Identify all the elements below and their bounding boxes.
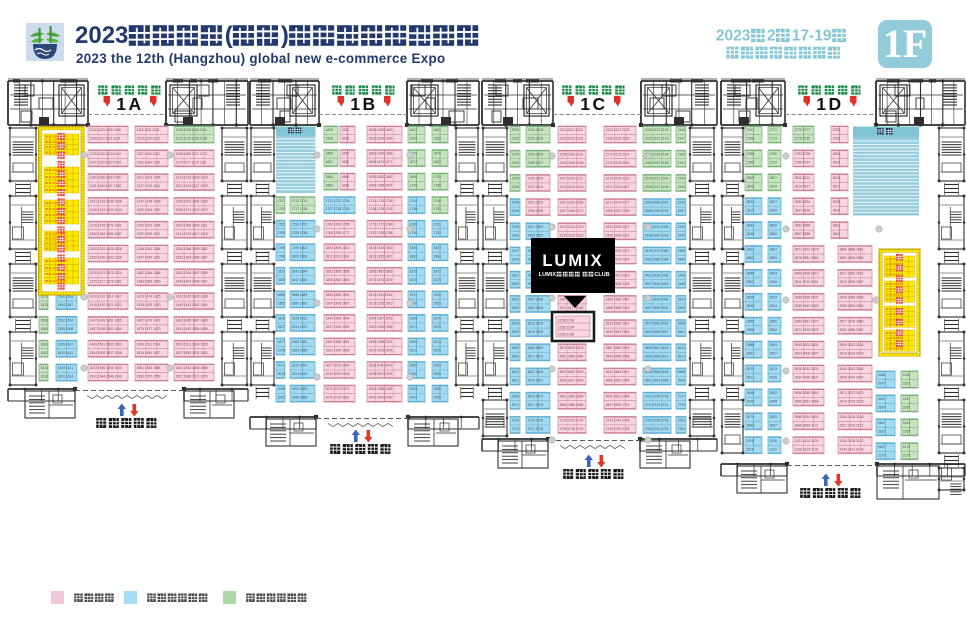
svg-text:1756 1757: 1756 1757 xyxy=(292,222,308,226)
svg-text:2033 2034 2035: 2033 2034 2035 xyxy=(326,372,350,376)
svg-text:3121 3124 3125: 3121 3124 3125 xyxy=(795,439,819,443)
svg-text:1975: 1975 xyxy=(434,325,442,329)
svg-text:3147: 3147 xyxy=(878,382,886,386)
svg-text:1689: 1689 xyxy=(342,184,350,188)
svg-text:1866 1867 1869: 1866 1867 1869 xyxy=(369,269,393,273)
svg-text:1139 1142 1143 1144: 1139 1142 1143 1144 xyxy=(90,152,121,156)
svg-text:2196: 2196 xyxy=(512,185,520,189)
svg-text:2102 2103: 2102 2103 xyxy=(528,128,544,132)
svg-text:1616: 1616 xyxy=(41,375,49,379)
svg-text:2806: 2806 xyxy=(747,184,755,188)
svg-text:2724 2726: 2724 2726 xyxy=(528,419,544,423)
svg-text:2116 2119 2122: 2116 2119 2122 xyxy=(560,137,584,141)
svg-text:1703: 1703 xyxy=(434,175,442,179)
svg-text:1980 1981: 1980 1981 xyxy=(292,340,308,344)
svg-text:1877: 1877 xyxy=(434,269,442,273)
svg-text:3074 3075 3078: 3074 3075 3078 xyxy=(840,400,864,404)
svg-text:2625 2627: 2625 2627 xyxy=(528,379,544,383)
svg-text:2194: 2194 xyxy=(512,177,520,181)
svg-text:1109 1110 1113 1114: 1109 1110 1113 1114 xyxy=(90,137,121,141)
svg-text:3045 3046 3047: 3045 3046 3047 xyxy=(840,376,864,380)
svg-text:3118: 3118 xyxy=(770,439,777,443)
svg-text:2929: 2929 xyxy=(747,295,755,299)
svg-text:2790: 2790 xyxy=(770,152,778,156)
svg-text:2084 2086 2089: 2084 2086 2089 xyxy=(369,387,393,391)
svg-text:1755: 1755 xyxy=(278,231,286,235)
svg-text:1602: 1602 xyxy=(41,351,49,355)
svg-text:2451: 2451 xyxy=(512,298,520,302)
svg-text:2785: 2785 xyxy=(833,137,841,141)
svg-text:3126 3129 3131: 3126 3129 3131 xyxy=(795,447,819,451)
svg-text:3016 3018 3019: 3016 3018 3019 xyxy=(840,352,864,356)
svg-text:2213 2215 2216: 2213 2215 2216 xyxy=(560,185,584,189)
svg-text:3082: 3082 xyxy=(747,423,755,427)
svg-text:2767: 2767 xyxy=(747,128,755,132)
svg-text:1679: 1679 xyxy=(434,152,442,156)
svg-text:1668 1670 1671: 1668 1670 1671 xyxy=(369,160,393,164)
svg-text:1847 1850: 1847 1850 xyxy=(292,278,308,282)
svg-text:1201 1203 1204: 1201 1203 1204 xyxy=(137,176,161,180)
svg-text:2130 2132 2133: 2130 2132 2133 xyxy=(606,137,630,141)
svg-text:1240 1242 1243 1244: 1240 1242 1243 1244 xyxy=(90,208,122,212)
svg-text:2982 2985 2987: 2982 2985 2987 xyxy=(840,328,864,332)
svg-text:2199 2200: 2199 2200 xyxy=(528,177,544,181)
svg-text:2146: 2146 xyxy=(678,128,686,132)
svg-text:1717 1718: 1717 1718 xyxy=(292,207,308,211)
svg-text:1116 1119 1120: 1116 1119 1120 xyxy=(137,128,160,132)
svg-text:2991: 2991 xyxy=(747,352,755,356)
svg-text:2811 2814: 2811 2814 xyxy=(795,176,811,180)
svg-text:2782: 2782 xyxy=(833,128,841,132)
svg-text:1132 1133 1136 1138: 1132 1133 1136 1138 xyxy=(176,137,207,141)
svg-text:2581 2583 2584: 2581 2583 2584 xyxy=(560,354,584,358)
svg-text:1688: 1688 xyxy=(342,175,350,179)
svg-text:1841 1844: 1841 1844 xyxy=(292,269,308,273)
svg-text:2391: 2391 xyxy=(512,273,520,277)
svg-text:3107 3109 3112: 3107 3109 3112 xyxy=(840,423,864,427)
svg-text:1694 1695 1697: 1694 1695 1697 xyxy=(369,184,393,188)
svg-text:1647: 1647 xyxy=(410,128,418,132)
svg-text:2571 2573: 2571 2573 xyxy=(528,354,544,358)
svg-text:2512 2515: 2512 2515 xyxy=(528,322,544,326)
svg-text:1698: 1698 xyxy=(410,175,418,179)
svg-text:2587 2590 2593: 2587 2590 2593 xyxy=(606,346,630,350)
svg-text:1652: 1652 xyxy=(434,137,442,141)
svg-text:2606 2609 2612: 2606 2609 2612 xyxy=(645,354,669,358)
svg-text:2297: 2297 xyxy=(678,209,686,213)
svg-text:2389: 2389 xyxy=(678,258,686,262)
svg-text:2483 2486 2487: 2483 2486 2487 xyxy=(606,298,630,302)
svg-text:2301 2302: 2301 2302 xyxy=(528,225,544,229)
svg-text:2837 2838: 2837 2838 xyxy=(795,208,811,212)
svg-text:1681: 1681 xyxy=(434,160,442,164)
svg-text:3170: 3170 xyxy=(878,453,886,457)
svg-text:2977 2978 2980: 2977 2978 2980 xyxy=(840,319,864,323)
svg-text:2288 2289 2292: 2288 2289 2292 xyxy=(645,209,669,213)
svg-text:2454: 2454 xyxy=(512,306,520,310)
svg-text:1542 1544 1546 1549: 1542 1544 1546 1549 xyxy=(90,375,122,379)
svg-text:1491 1493 1494 1496: 1491 1493 1494 1496 xyxy=(176,327,208,331)
svg-text:2018: 2018 xyxy=(278,372,286,376)
svg-text:2243: 2243 xyxy=(678,185,686,189)
svg-text:2020 2021: 2020 2021 xyxy=(292,364,308,368)
svg-text:2892 2894 2896: 2892 2894 2896 xyxy=(840,256,864,260)
svg-text:2861: 2861 xyxy=(833,224,841,228)
svg-text:1282 1284 1286 1287: 1282 1284 1286 1287 xyxy=(90,232,122,236)
svg-text:1183 1186 1189 1190: 1183 1186 1189 1190 xyxy=(90,176,121,180)
svg-text:2729 2731 2734: 2729 2731 2734 xyxy=(560,419,584,423)
svg-text:1221 1224 1227 1229: 1221 1224 1227 1229 xyxy=(176,184,208,188)
svg-text:2533 2536 2537: 2533 2536 2537 xyxy=(606,322,630,326)
svg-text:2809: 2809 xyxy=(770,184,778,188)
svg-text:2617: 2617 xyxy=(678,354,686,358)
svg-text:1758 1759: 1758 1759 xyxy=(292,231,308,235)
svg-text:1C58 1C60: 1C58 1C60 xyxy=(558,319,574,323)
svg-text:2690 2691 2694: 2690 2691 2694 xyxy=(606,394,630,398)
svg-text:1791: 1791 xyxy=(434,222,442,226)
svg-text:2015: 2015 xyxy=(434,349,442,353)
svg-text:2150: 2150 xyxy=(512,161,520,165)
svg-text:1102 1103 1105 1108: 1102 1103 1105 1108 xyxy=(90,128,121,132)
svg-text:2246: 2246 xyxy=(512,201,520,205)
svg-text:1721 1722 1724: 1721 1722 1724 xyxy=(326,199,350,203)
svg-text:1123 1124 1125: 1123 1124 1125 xyxy=(137,137,160,141)
svg-text:2722: 2722 xyxy=(512,427,520,431)
svg-text:1457 1458 1461 1464: 1457 1458 1461 1464 xyxy=(90,327,122,331)
svg-text:2958: 2958 xyxy=(747,328,755,332)
svg-text:1C62 1C64: 1C62 1C64 xyxy=(558,326,574,330)
svg-text:2345: 2345 xyxy=(678,225,686,229)
svg-text:1214 1215 1218 1219: 1214 1215 1218 1219 xyxy=(176,176,208,180)
svg-text:1362 1364 1366 1367: 1362 1364 1366 1367 xyxy=(176,256,208,260)
svg-text:2862: 2862 xyxy=(833,232,841,236)
svg-text:1834: 1834 xyxy=(434,254,442,258)
svg-text:1589: 1589 xyxy=(41,327,49,331)
svg-text:2773: 2773 xyxy=(770,137,778,141)
svg-text:2240: 2240 xyxy=(678,177,686,181)
svg-text:2727 2728: 2727 2728 xyxy=(528,427,544,431)
svg-text:1329 1330 1333 1336: 1329 1330 1333 1336 xyxy=(90,256,122,260)
svg-text:3087: 3087 xyxy=(770,423,778,427)
svg-text:3140 3141 3143: 3140 3141 3143 xyxy=(840,447,864,451)
svg-text:1567 1568 1571 1573: 1567 1568 1571 1573 xyxy=(176,375,208,379)
svg-text:1561 1563 1565 1566: 1561 1563 1565 1566 xyxy=(176,366,208,370)
svg-text:3160: 3160 xyxy=(903,406,911,410)
svg-text:2796 2797: 2796 2797 xyxy=(795,161,811,165)
svg-text:3115: 3115 xyxy=(747,439,754,443)
svg-text:2753 2755 2756: 2753 2755 2756 xyxy=(645,419,669,423)
svg-text:2620: 2620 xyxy=(512,370,520,374)
svg-text:2863: 2863 xyxy=(747,248,755,252)
svg-text:2827: 2827 xyxy=(770,200,778,204)
svg-text:2599 2601 2603: 2599 2601 2603 xyxy=(645,346,669,350)
svg-text:1859 1860 1863: 1859 1860 1863 xyxy=(326,278,350,282)
svg-text:1168 1169 1171 1173: 1168 1169 1171 1173 xyxy=(176,152,207,156)
svg-text:2038 2040 2043: 2038 2040 2043 xyxy=(369,364,393,368)
svg-text:1588: 1588 xyxy=(41,319,49,323)
svg-text:2800: 2800 xyxy=(833,152,841,156)
svg-text:3120: 3120 xyxy=(770,447,778,451)
svg-text:2218 2219 2220: 2218 2219 2220 xyxy=(606,177,630,181)
svg-text:2923 2925 2927: 2923 2925 2927 xyxy=(840,280,864,284)
svg-text:2677 2679: 2677 2679 xyxy=(528,403,544,407)
svg-text:2842: 2842 xyxy=(833,208,841,212)
svg-text:1610 1611: 1610 1611 xyxy=(58,351,74,355)
svg-text:2822: 2822 xyxy=(747,200,755,204)
svg-text:2846: 2846 xyxy=(747,232,755,236)
svg-text:2378 2379 2380: 2378 2379 2380 xyxy=(645,249,669,253)
svg-text:1B: 1B xyxy=(350,94,378,114)
svg-text:1482 1485 1487 1489: 1482 1485 1487 1489 xyxy=(176,319,208,323)
svg-text:1628: 1628 xyxy=(326,137,334,141)
svg-text:3165: 3165 xyxy=(903,429,911,433)
svg-text:1744: 1744 xyxy=(410,199,418,203)
svg-text:2865: 2865 xyxy=(747,256,755,260)
svg-text:3000 3001 3002: 3000 3001 3002 xyxy=(795,343,819,347)
svg-text:2886 2888 2891: 2886 2888 2891 xyxy=(840,248,864,252)
svg-text:2905: 2905 xyxy=(770,280,778,284)
svg-text:2736 2738 2740: 2736 2738 2740 xyxy=(560,427,584,431)
svg-text:2717: 2717 xyxy=(678,394,686,398)
svg-text:2933: 2933 xyxy=(770,295,778,299)
svg-text:2821: 2821 xyxy=(833,184,841,188)
svg-text:3133 3135 3137: 3133 3135 3137 xyxy=(840,439,864,443)
svg-text:1927: 1927 xyxy=(278,325,286,329)
svg-text:1709: 1709 xyxy=(278,207,286,211)
svg-text:2575 2576 2578: 2575 2576 2578 xyxy=(560,346,584,350)
svg-text:2140 2142 2143: 2140 2142 2143 xyxy=(645,137,669,141)
svg-text:2271 2274 2277: 2271 2274 2277 xyxy=(606,201,630,205)
svg-text:3162: 3162 xyxy=(878,421,886,425)
svg-text:2300: 2300 xyxy=(512,233,520,237)
svg-text:2461 2464: 2461 2464 xyxy=(528,306,544,310)
svg-text:2906 2909 2910: 2906 2909 2910 xyxy=(795,272,819,276)
svg-text:2488 2489 2490: 2488 2489 2490 xyxy=(606,306,630,310)
svg-text:2793 2795: 2793 2795 xyxy=(795,152,811,156)
svg-text:2349: 2349 xyxy=(512,258,520,262)
svg-text:2636 2637 2640: 2636 2637 2640 xyxy=(560,379,584,383)
svg-text:1C: 1C xyxy=(580,94,608,114)
svg-text:1290 1291 1294: 1290 1291 1294 xyxy=(137,223,161,227)
svg-text:2189: 2189 xyxy=(678,152,686,156)
svg-text:2105 2108: 2105 2108 xyxy=(528,137,544,141)
svg-text:2971 2973 2975: 2971 2973 2975 xyxy=(795,328,819,332)
svg-text:1467 1470 1473: 1467 1470 1473 xyxy=(137,319,161,323)
svg-text:2935 2936 2937: 2935 2936 2937 xyxy=(795,295,819,299)
svg-text:1555 1557 1559: 1555 1557 1559 xyxy=(137,375,161,379)
svg-text:1808 1809 1810: 1808 1809 1810 xyxy=(326,246,350,250)
svg-text:1929 1931: 1929 1931 xyxy=(292,317,308,321)
svg-text:2622 2624: 2622 2624 xyxy=(528,370,544,374)
svg-text:2554 2555 2557: 2554 2555 2557 xyxy=(645,330,669,334)
svg-text:1768 1769 1772: 1768 1769 1772 xyxy=(326,231,350,235)
svg-text:1830: 1830 xyxy=(410,246,418,250)
svg-text:1527 1530 1531 1532: 1527 1530 1531 1532 xyxy=(176,351,208,355)
svg-text:1C66 1C68: 1C66 1C68 xyxy=(558,333,574,337)
svg-text:2562: 2562 xyxy=(512,346,520,350)
svg-text:1940 1943 1944: 1940 1943 1944 xyxy=(326,317,350,321)
svg-text:2310 2313 2315: 2310 2313 2315 xyxy=(560,225,584,229)
svg-text:1625: 1625 xyxy=(326,128,334,132)
svg-text:CLUB: CLUB xyxy=(594,272,609,278)
svg-text:2505: 2505 xyxy=(678,306,686,310)
svg-text:3096 3099 3101: 3096 3099 3101 xyxy=(795,423,819,427)
svg-text:1977: 1977 xyxy=(278,340,286,344)
svg-text:2285 2286 2287: 2285 2286 2287 xyxy=(645,201,669,205)
svg-text:1320 1322 1325 1328: 1320 1322 1325 1328 xyxy=(90,247,122,251)
svg-text:3071 3072 3073: 3071 3072 3073 xyxy=(840,391,864,395)
svg-text:(: ( xyxy=(225,22,233,49)
svg-text:1268 1271 1272 1273: 1268 1271 1272 1273 xyxy=(176,208,208,212)
svg-text:2099: 2099 xyxy=(512,128,520,132)
svg-text:1910 1911 1912: 1910 1911 1912 xyxy=(369,293,393,297)
svg-text:3009 3012 3014: 3009 3012 3014 xyxy=(840,343,864,347)
svg-text:2256 2258: 2256 2258 xyxy=(528,209,544,213)
svg-text:1934 1937: 1934 1937 xyxy=(292,325,308,329)
svg-text:2853 2855: 2853 2855 xyxy=(795,224,811,228)
svg-text:2388: 2388 xyxy=(678,249,686,253)
svg-text:1504 1505 1507 1508: 1504 1505 1507 1508 xyxy=(90,351,122,355)
svg-text:1798: 1798 xyxy=(278,254,286,258)
svg-text:1476 1477 1479: 1476 1477 1479 xyxy=(137,327,161,331)
svg-text:2955: 2955 xyxy=(747,319,755,323)
svg-text:2819: 2819 xyxy=(833,176,841,180)
svg-text:1636 1639 1640: 1636 1639 1640 xyxy=(369,128,393,132)
svg-text:2061 2063: 2061 2063 xyxy=(292,387,308,391)
svg-text:2090 2091 2092: 2090 2091 2092 xyxy=(369,396,393,400)
svg-text:1886 1889: 1886 1889 xyxy=(292,293,308,297)
svg-text:2629 2632 2633: 2629 2632 2633 xyxy=(560,370,584,374)
svg-text:2295: 2295 xyxy=(678,201,686,205)
svg-text:3028 3031 3033: 3028 3031 3033 xyxy=(795,367,819,371)
svg-text:1247 1248 1249: 1247 1248 1249 xyxy=(137,200,161,204)
svg-text:1592 1594: 1592 1594 xyxy=(58,319,74,323)
svg-text:1388 1389 1390: 1388 1389 1390 xyxy=(137,279,161,283)
svg-text:1947 1949 1951: 1947 1949 1951 xyxy=(326,325,350,329)
svg-text:1314 1316 1317 1318: 1314 1316 1317 1318 xyxy=(176,232,208,236)
svg-text:3175: 3175 xyxy=(903,453,911,457)
svg-text:2899: 2899 xyxy=(747,272,755,276)
svg-text:2662 2663 2665: 2662 2663 2665 xyxy=(645,379,669,383)
svg-text:1392 1394 1397 1399: 1392 1394 1397 1399 xyxy=(176,271,208,275)
svg-text:2324 2325 2327: 2324 2325 2327 xyxy=(606,225,630,229)
svg-text:2305 2307: 2305 2307 xyxy=(528,233,544,237)
svg-text:1515 1516 1517: 1515 1516 1517 xyxy=(137,351,161,355)
svg-text:2540 2543 2544: 2540 2543 2544 xyxy=(606,330,630,334)
svg-text:2136 2137 2139: 2136 2137 2139 xyxy=(645,128,669,132)
svg-text:2202 2204: 2202 2204 xyxy=(528,185,544,189)
svg-text:2328 2329 2331: 2328 2329 2331 xyxy=(606,233,630,237)
svg-text:2054: 2054 xyxy=(434,364,442,368)
svg-text:22 24 26 28 30: 22 24 26 28 30 xyxy=(886,347,904,351)
svg-text:1926: 1926 xyxy=(278,317,286,321)
svg-text:2711 2713 2714: 2711 2713 2714 xyxy=(645,403,669,407)
svg-text:2024 2025: 2024 2025 xyxy=(292,372,308,376)
svg-text:2280 2281 2283: 2280 2281 2283 xyxy=(606,209,630,213)
svg-text:2070 2073 2074: 2070 2073 2074 xyxy=(326,387,350,391)
svg-text:2930: 2930 xyxy=(747,304,755,308)
svg-text:2825: 2825 xyxy=(747,208,755,212)
svg-text:2788: 2788 xyxy=(747,161,755,165)
svg-text:2681 2683 2684: 2681 2683 2684 xyxy=(560,394,584,398)
svg-text:3154: 3154 xyxy=(878,406,886,410)
svg-text:2805: 2805 xyxy=(747,176,755,180)
svg-text:1987 1988 1991: 1987 1988 1991 xyxy=(326,340,350,344)
svg-text:2153 2154: 2153 2154 xyxy=(528,152,544,156)
svg-text:2338 2340 2343: 2338 2340 2343 xyxy=(645,233,669,237)
svg-text:2720: 2720 xyxy=(512,419,520,423)
svg-text:1157 1160 1162: 1157 1160 1162 xyxy=(137,152,160,156)
svg-text:3164: 3164 xyxy=(903,421,911,425)
svg-text:LUMIX: LUMIX xyxy=(539,272,556,278)
svg-text:2149: 2149 xyxy=(512,152,520,156)
svg-text:1304 1306 1309 1311: 1304 1306 1309 1311 xyxy=(176,223,208,227)
svg-text:1631: 1631 xyxy=(342,128,350,132)
svg-text:2768: 2768 xyxy=(747,137,755,141)
svg-text:1969: 1969 xyxy=(410,317,418,321)
svg-text:1879: 1879 xyxy=(434,278,442,282)
svg-text:1663 1664 1666: 1663 1664 1666 xyxy=(369,152,393,156)
svg-text:2960: 2960 xyxy=(770,319,778,323)
svg-text:1795: 1795 xyxy=(278,246,286,250)
svg-text:1578: 1578 xyxy=(41,303,49,307)
svg-text:2702 2705 2708: 2702 2705 2708 xyxy=(645,394,669,398)
svg-text:2778 2780: 2778 2780 xyxy=(795,137,811,141)
svg-text:2669: 2669 xyxy=(512,394,520,398)
svg-text:1895 1898 1901: 1895 1898 1901 xyxy=(326,293,350,297)
svg-text:1799 1802: 1799 1802 xyxy=(292,246,308,250)
svg-text:2962: 2962 xyxy=(770,328,778,332)
svg-text:2950 2953 2954: 2950 2953 2954 xyxy=(840,304,864,308)
svg-text:2124 2127 2129: 2124 2127 2129 xyxy=(606,128,630,132)
svg-text:2844: 2844 xyxy=(747,224,755,228)
svg-text:1619 1621: 1619 1621 xyxy=(58,366,74,370)
svg-text:1748: 1748 xyxy=(434,199,442,203)
svg-text:1684: 1684 xyxy=(326,175,334,179)
svg-text:2849: 2849 xyxy=(770,224,778,228)
svg-text:1655: 1655 xyxy=(326,152,334,156)
svg-text:2934: 2934 xyxy=(770,304,778,308)
svg-text:2437 2440 2443: 2437 2440 2443 xyxy=(645,282,669,286)
svg-text:1727 1728 1730: 1727 1728 1730 xyxy=(326,207,350,211)
svg-text:1338 1341 1344: 1338 1341 1344 xyxy=(137,247,161,251)
svg-text:3157: 3157 xyxy=(903,397,911,401)
svg-text:1601: 1601 xyxy=(41,342,49,346)
svg-text:1752: 1752 xyxy=(278,222,286,226)
svg-text:1992 1994 1995: 1992 1994 1995 xyxy=(326,349,350,353)
svg-text:2869: 2869 xyxy=(770,256,778,260)
svg-text:2642 2644 2647: 2642 2644 2647 xyxy=(606,370,630,374)
svg-text:2566 2569: 2566 2569 xyxy=(528,346,544,350)
svg-text:1974: 1974 xyxy=(434,317,442,321)
svg-text:1605 1607: 1605 1607 xyxy=(58,342,74,346)
svg-text:1614: 1614 xyxy=(41,366,49,370)
svg-text:1751: 1751 xyxy=(434,207,442,211)
svg-text:3004 3005 3007: 3004 3005 3007 xyxy=(795,352,819,356)
svg-text:2017: 2017 xyxy=(278,364,286,368)
svg-text:1163 1164 1165: 1163 1164 1165 xyxy=(137,160,160,164)
svg-text:1259 1261 1264 1266: 1259 1261 1264 1266 xyxy=(176,200,208,204)
svg-text:3026: 3026 xyxy=(770,376,778,380)
svg-text:2904: 2904 xyxy=(770,272,778,276)
svg-text:2650 2652 2654: 2650 2652 2654 xyxy=(606,379,630,383)
svg-text:2045 2047 2049: 2045 2047 2049 xyxy=(369,372,393,376)
svg-text:2786: 2786 xyxy=(747,152,755,156)
svg-text:2318 2319 2322: 2318 2319 2322 xyxy=(560,233,584,237)
svg-text:2558: 2558 xyxy=(678,322,686,326)
svg-text:3021: 3021 xyxy=(747,376,755,380)
svg-text:2850: 2850 xyxy=(770,232,778,236)
